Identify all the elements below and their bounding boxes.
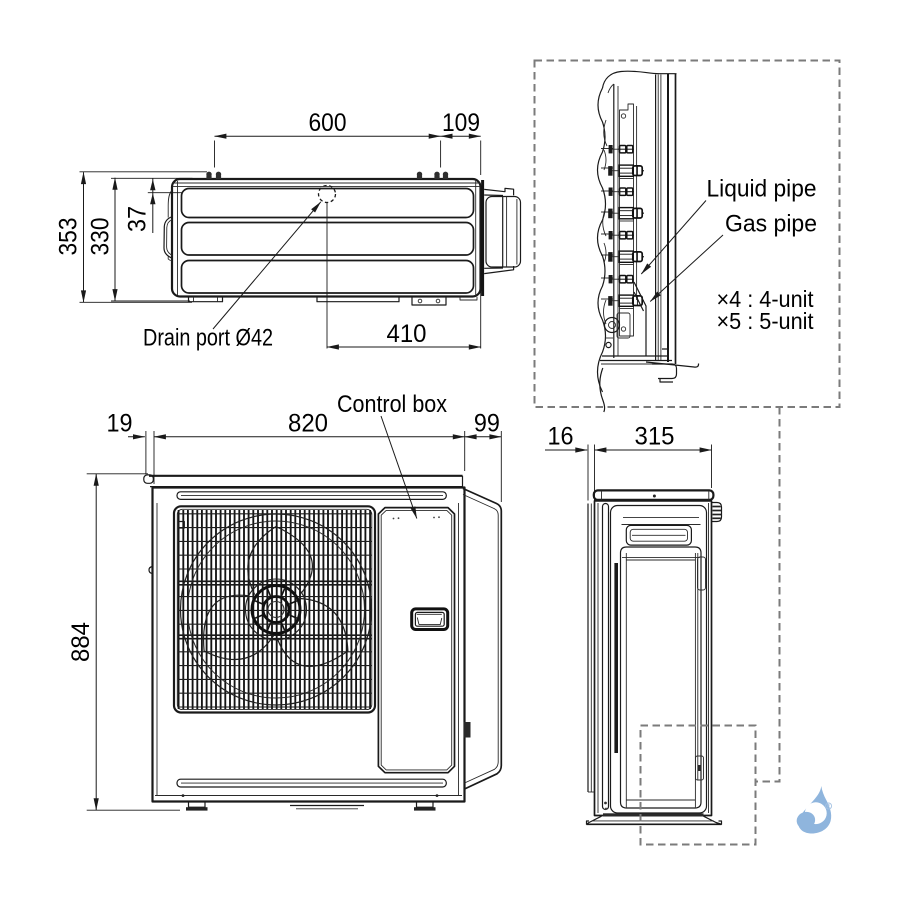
svg-text:330: 330: [87, 218, 115, 256]
svg-text:×5 : 5-unit: ×5 : 5-unit: [717, 308, 815, 334]
svg-text:109: 109: [442, 109, 480, 137]
svg-text:99: 99: [474, 410, 500, 438]
svg-text:600: 600: [309, 109, 347, 137]
svg-text:37: 37: [124, 206, 152, 232]
svg-text:Drain port Ø42: Drain port Ø42: [143, 325, 273, 352]
svg-text:Control box: Control box: [337, 391, 447, 418]
svg-text:Liquid pipe: Liquid pipe: [707, 176, 817, 203]
svg-text:16: 16: [548, 423, 574, 451]
svg-text:884: 884: [67, 622, 95, 662]
svg-text:410: 410: [387, 320, 427, 348]
svg-text:315: 315: [635, 423, 675, 451]
svg-text:19: 19: [107, 410, 133, 438]
svg-text:353: 353: [55, 218, 83, 256]
svg-text:820: 820: [288, 410, 328, 438]
svg-text:Gas pipe: Gas pipe: [725, 211, 817, 238]
